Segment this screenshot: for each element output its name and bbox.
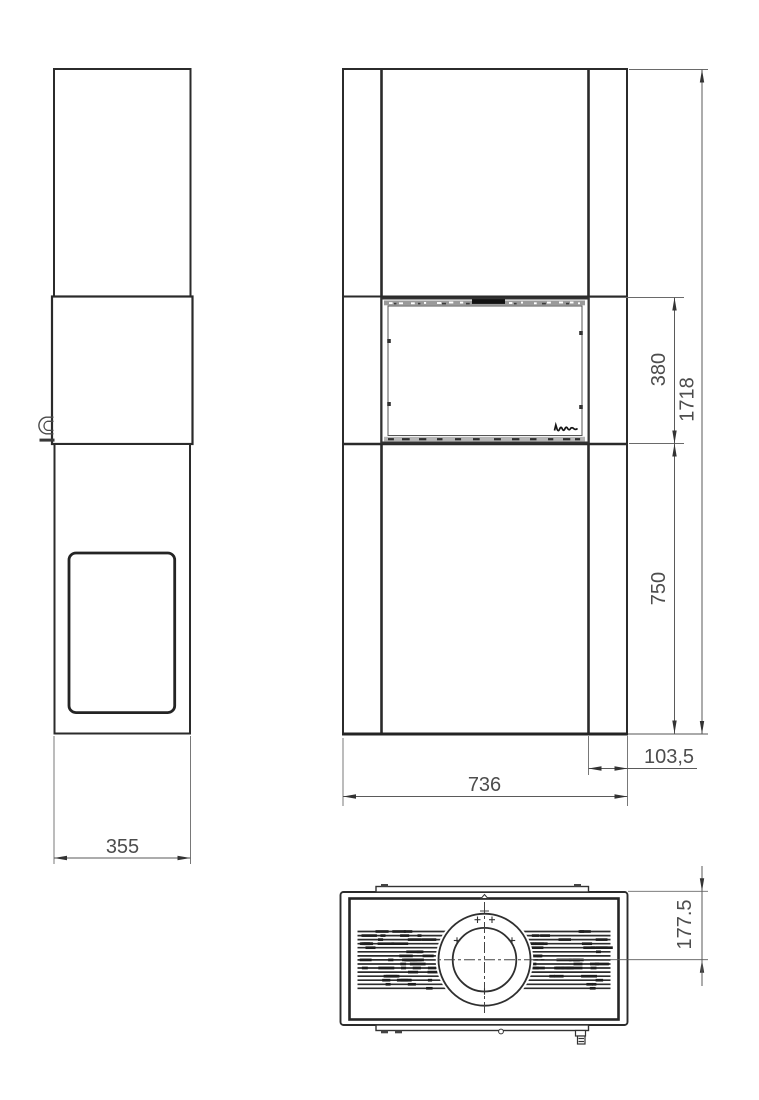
svg-text:177.5: 177.5 [674, 899, 696, 949]
svg-text:380: 380 [648, 353, 670, 386]
svg-text:736: 736 [468, 774, 501, 796]
svg-text:103,5: 103,5 [644, 746, 694, 768]
svg-text:750: 750 [648, 572, 670, 605]
svg-text:355: 355 [106, 836, 139, 858]
svg-text:1718: 1718 [677, 377, 699, 422]
